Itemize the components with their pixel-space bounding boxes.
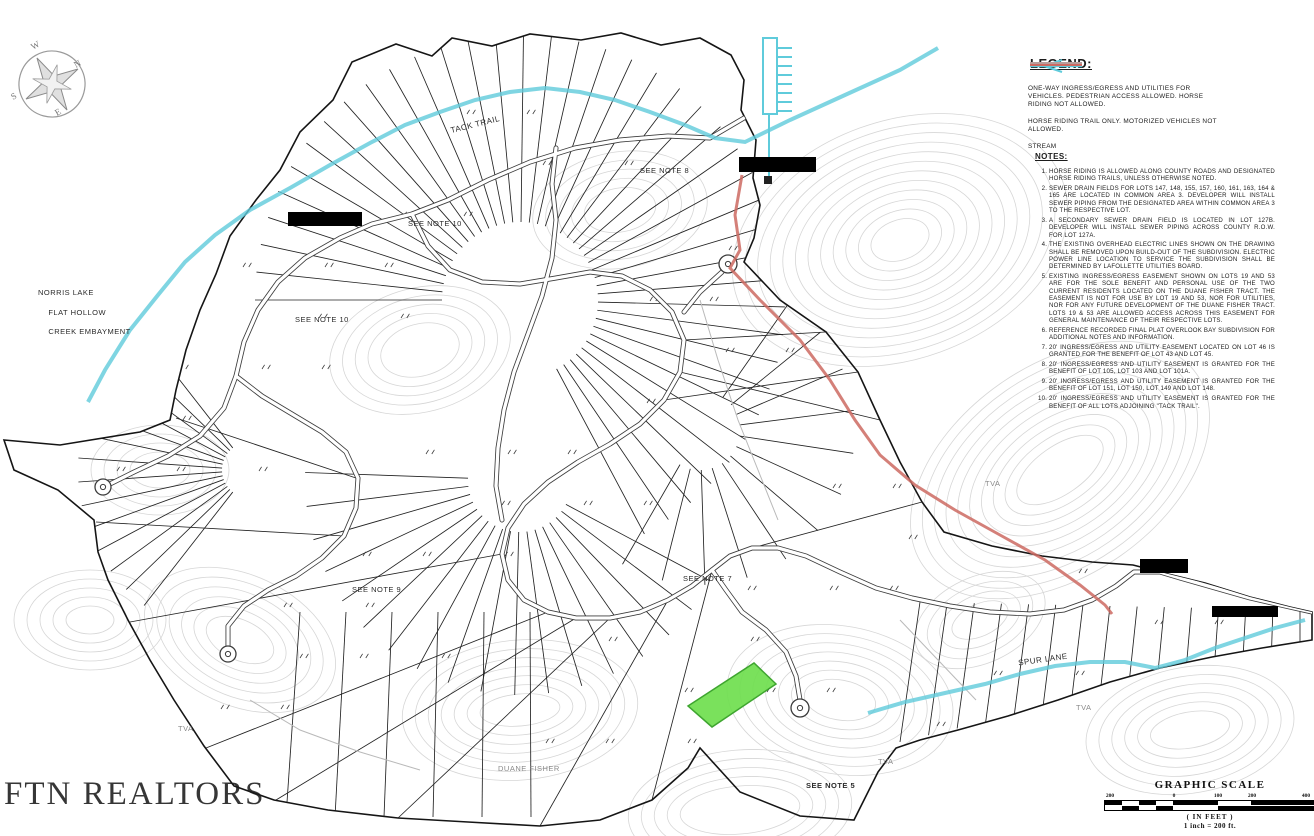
compass-rose	[7, 39, 97, 129]
norris-lake-line1: NORRIS LAKE	[38, 288, 94, 297]
plat-map-sheet: NSEW NORRIS LAKE FLAT HOLLOW CREEK EMBAY…	[0, 0, 1314, 836]
stream-icon	[1028, 58, 1084, 68]
legend-panel: LEGEND: ONE-WAY INGRESS/EGRESS AND UTILI…	[1028, 56, 1314, 160]
redaction-bar	[739, 157, 816, 172]
see-note-8-label: SEE NOTE 8	[640, 166, 689, 175]
scale-tick: 400	[1302, 793, 1310, 799]
scale-tick: 200	[1106, 793, 1114, 799]
scale-tick: 0	[1173, 793, 1176, 799]
note-item: THE EXISTING OVERHEAD ELECTRIC LINES SHO…	[1049, 241, 1275, 270]
scale-tick: 200	[1248, 793, 1256, 799]
see-note-10-label: SEE NOTE 10	[408, 219, 462, 228]
note-item: A SECONDARY SEWER DRAIN FIELD IS LOCATED…	[1049, 217, 1275, 239]
graphic-scale-ticks: 200 0 100 200 400	[1104, 793, 1314, 800]
legend-item-text: HORSE RIDING TRAIL ONLY. MOTORIZED VEHIC…	[1028, 118, 1218, 134]
tva-label: TVA	[1076, 703, 1092, 712]
see-note-9-label: SEE NOTE 9	[352, 585, 401, 594]
notes-list: HORSE RIDING IS ALLOWED ALONG COUNTY ROA…	[1035, 168, 1275, 410]
highlighted-lot	[688, 663, 776, 727]
legend-item-text: ONE-WAY INGRESS/EGRESS AND UTILITIES FOR…	[1028, 85, 1218, 109]
norris-lake-line2: FLAT HOLLOW	[48, 308, 106, 317]
compass-letter: W	[29, 39, 42, 52]
note-item: 20' INGRESS/EGRESS AND UTILITY EASEMENT …	[1049, 378, 1275, 393]
note-item: 20' INGRESS/EGRESS AND UTILITY EASEMENT …	[1049, 361, 1275, 376]
note-item: REFERENCE RECORDED FINAL PLAT OVERLOOK B…	[1049, 327, 1275, 342]
note-item: EXISTING INGRESS/EGRESS EASEMENT SHOWN O…	[1049, 273, 1275, 324]
legend-item-text: STREAM	[1028, 143, 1056, 151]
redaction-bar	[1212, 606, 1278, 617]
see-note-10-label: SEE NOTE 10	[295, 315, 349, 324]
graphic-scale: GRAPHIC SCALE 200 0 100 200 400 ( IN FEE…	[1104, 779, 1314, 830]
norris-lake-line3: CREEK EMBAYMENT	[48, 327, 130, 336]
legend-item-one-way: ONE-WAY INGRESS/EGRESS AND UTILITIES FOR…	[1028, 85, 1314, 109]
compass-letter: S	[9, 91, 18, 102]
streams	[250, 300, 976, 770]
scale-tick: 100	[1214, 793, 1222, 799]
tva-label: TVA	[878, 757, 894, 766]
tva-label: TVA	[985, 479, 1001, 488]
norris-lake-label: NORRIS LAKE FLAT HOLLOW CREEK EMBAYMENT	[38, 288, 131, 337]
see-note-5-label: SEE NOTE 5	[806, 781, 855, 790]
notes-panel: NOTES: HORSE RIDING IS ALLOWED ALONG COU…	[1035, 152, 1275, 412]
tva-label: TVA	[178, 724, 194, 733]
scale-bar	[1104, 800, 1314, 811]
redaction-bar	[1140, 559, 1188, 573]
duane-fisher-label: DUANE FISHER	[498, 764, 560, 773]
scale-ratio-caption: 1 inch = 200 ft.	[1104, 822, 1314, 830]
realtor-watermark: FTN REALTORS	[4, 776, 265, 813]
graphic-scale-title: GRAPHIC SCALE	[1104, 779, 1314, 791]
note-item: 20' INGRESS/EGRESS AND UTILITY EASEMENT …	[1049, 344, 1275, 359]
legend-item-stream: STREAM	[1028, 143, 1314, 151]
see-note-7-label: SEE NOTE 7	[683, 574, 732, 583]
legend-item-horse-trail: HORSE RIDING TRAIL ONLY. MOTORIZED VEHIC…	[1028, 118, 1314, 134]
note-item: HORSE RIDING IS ALLOWED ALONG COUNTY ROA…	[1049, 168, 1275, 183]
notes-title: NOTES:	[1035, 152, 1275, 161]
note-item: SEWER DRAIN FIELDS FOR LOTS 147, 148, 15…	[1049, 185, 1275, 214]
scale-unit-caption: ( IN FEET )	[1104, 813, 1314, 821]
note-item: 20' INGRESS/EGRESS AND UTILITY EASEMENT …	[1049, 395, 1275, 410]
redaction-bar	[288, 212, 362, 226]
